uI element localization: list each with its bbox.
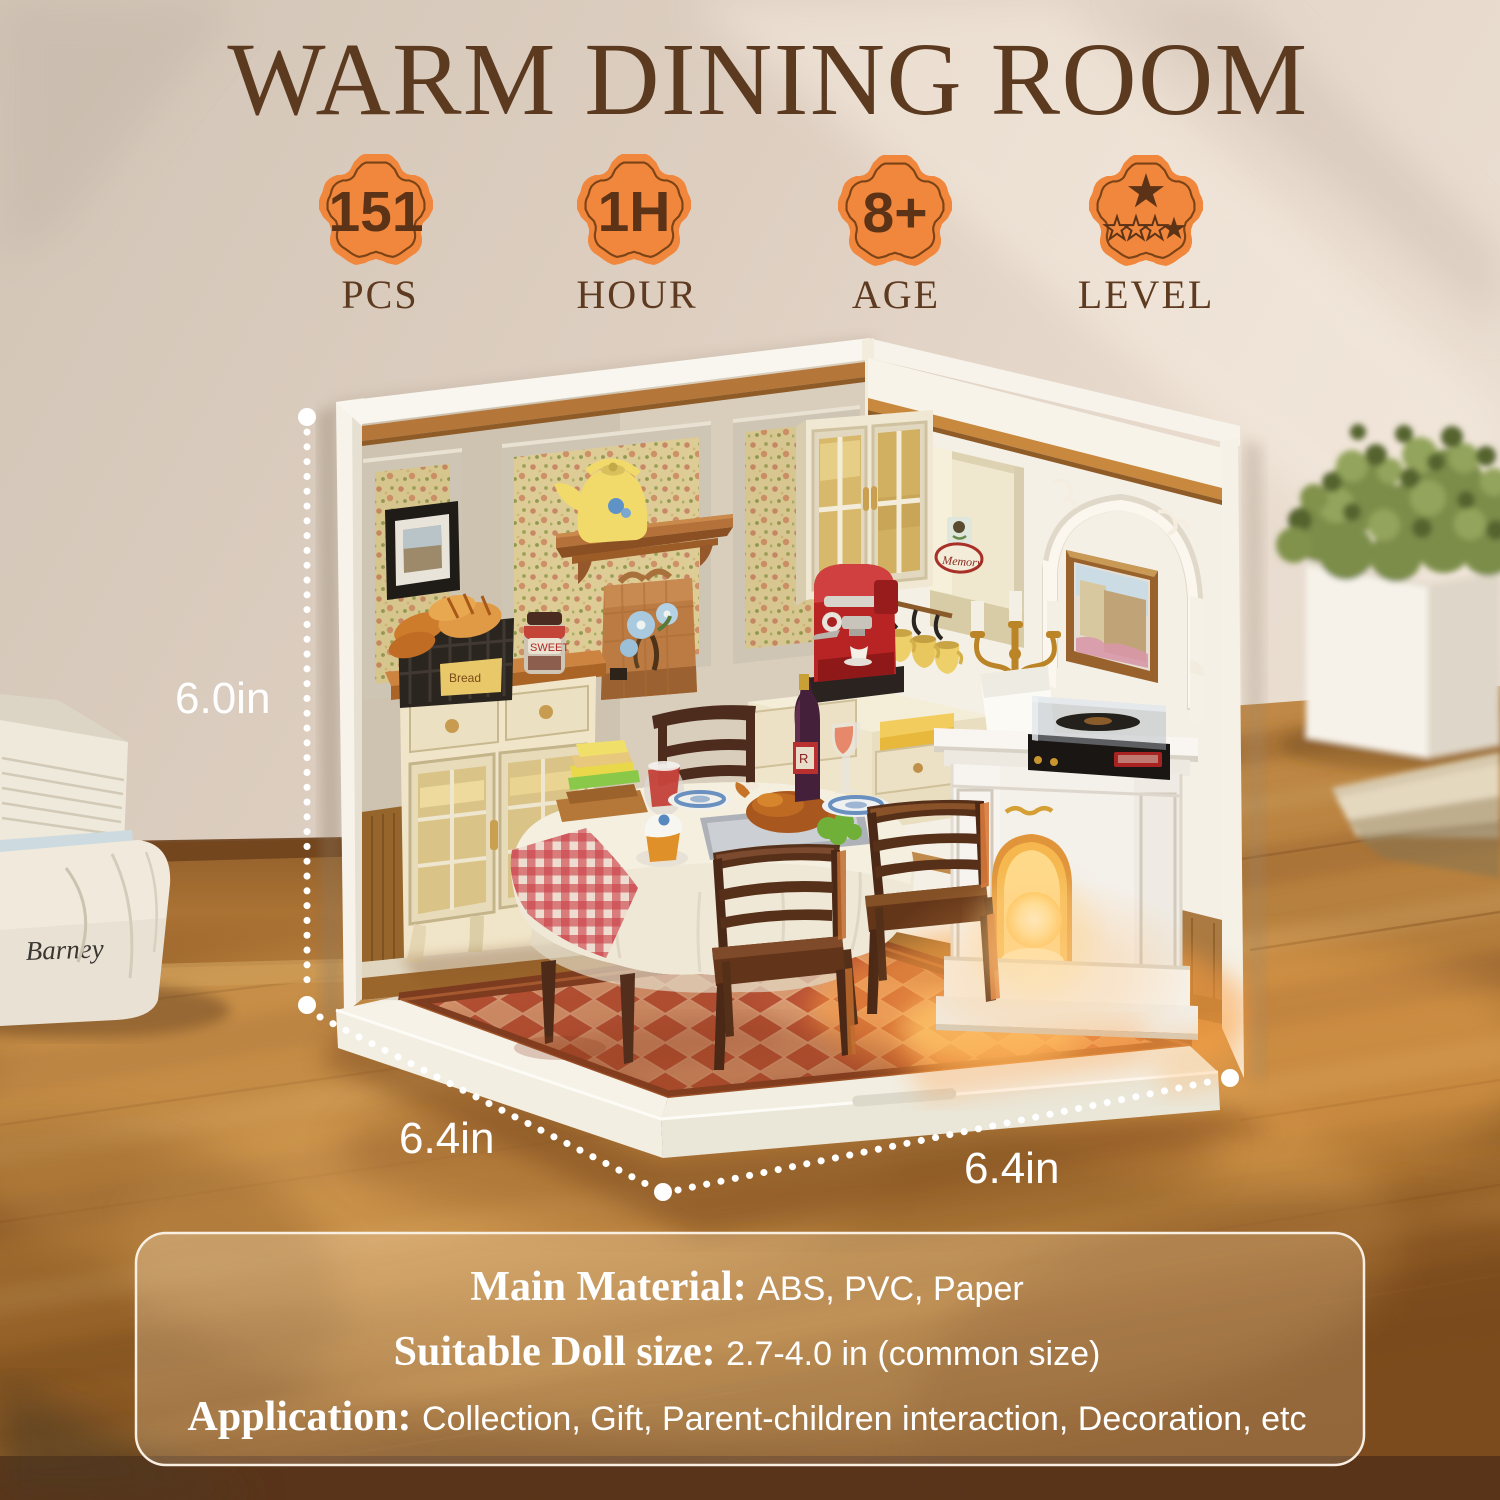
svg-text:6.0in: 6.0in (175, 674, 270, 723)
svg-text:Main Material: ABS, PVC, Pape: Main Material: ABS, PVC, Paper (470, 1264, 1023, 1310)
svg-text:WARM DINING ROOM: WARM DINING ROOM (227, 22, 1308, 137)
svg-text:8+: 8+ (863, 181, 928, 245)
svg-text:HOUR: HOUR (576, 272, 697, 317)
svg-text:151: 151 (328, 180, 423, 244)
svg-text:LEVEL: LEVEL (1078, 272, 1215, 317)
svg-text:1H: 1H (598, 180, 671, 244)
svg-text:Bread: Bread (449, 671, 481, 685)
svg-text:AGE: AGE (852, 272, 940, 317)
svg-text:R: R (799, 751, 808, 766)
svg-text:Application: Collection, Gift: Application: Collection, Gift, Parent-ch… (188, 1394, 1307, 1440)
svg-text:Barney: Barney (25, 933, 104, 966)
svg-text:6.4in: 6.4in (964, 1144, 1059, 1193)
svg-text:Memory: Memory (941, 553, 984, 570)
svg-text:Suitable Doll size: 2.7-4.0 i: Suitable Doll size: 2.7-4.0 in (common s… (394, 1329, 1101, 1375)
svg-text:SWEET: SWEET (530, 642, 569, 654)
svg-text:6.4in: 6.4in (399, 1114, 494, 1163)
svg-text:PCS: PCS (341, 272, 418, 317)
